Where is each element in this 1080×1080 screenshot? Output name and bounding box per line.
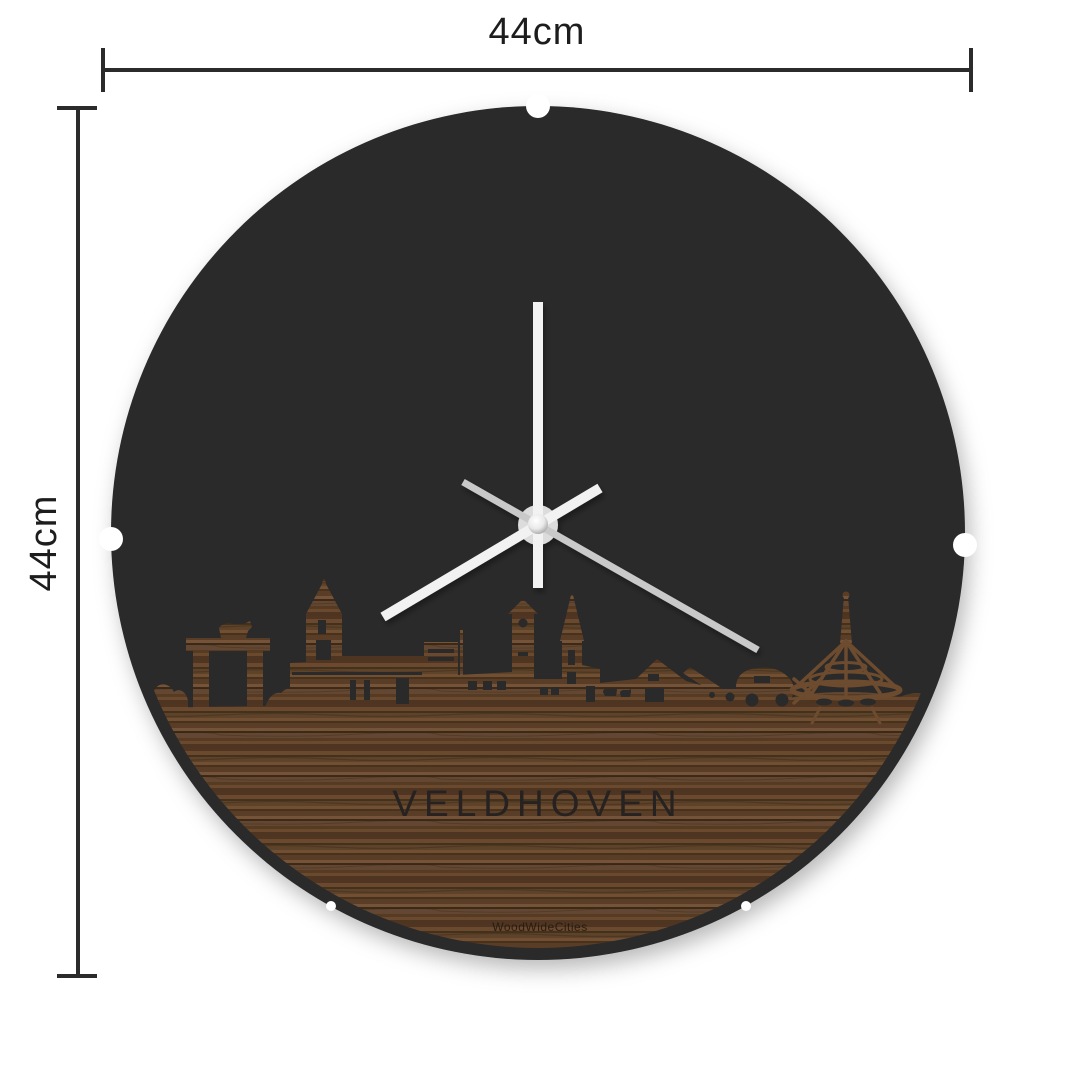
notch-right [953, 533, 977, 557]
skyline-clock: VELDHOVEN WoodWideCities [0, 0, 1080, 1080]
notch-bottom-left [326, 901, 336, 911]
saucer-bowl-holes [816, 699, 876, 707]
hub-cap [528, 514, 548, 534]
brand-text: WoodWideCities [492, 920, 587, 934]
notch-left [99, 527, 123, 551]
notch-bottom-right [741, 901, 751, 911]
product-stage: 44cm 44cm [0, 0, 1080, 1080]
city-name-text: VELDHOVEN [392, 783, 683, 824]
saucer-spike-knob [843, 592, 850, 599]
hanging-notch-top [526, 94, 550, 118]
